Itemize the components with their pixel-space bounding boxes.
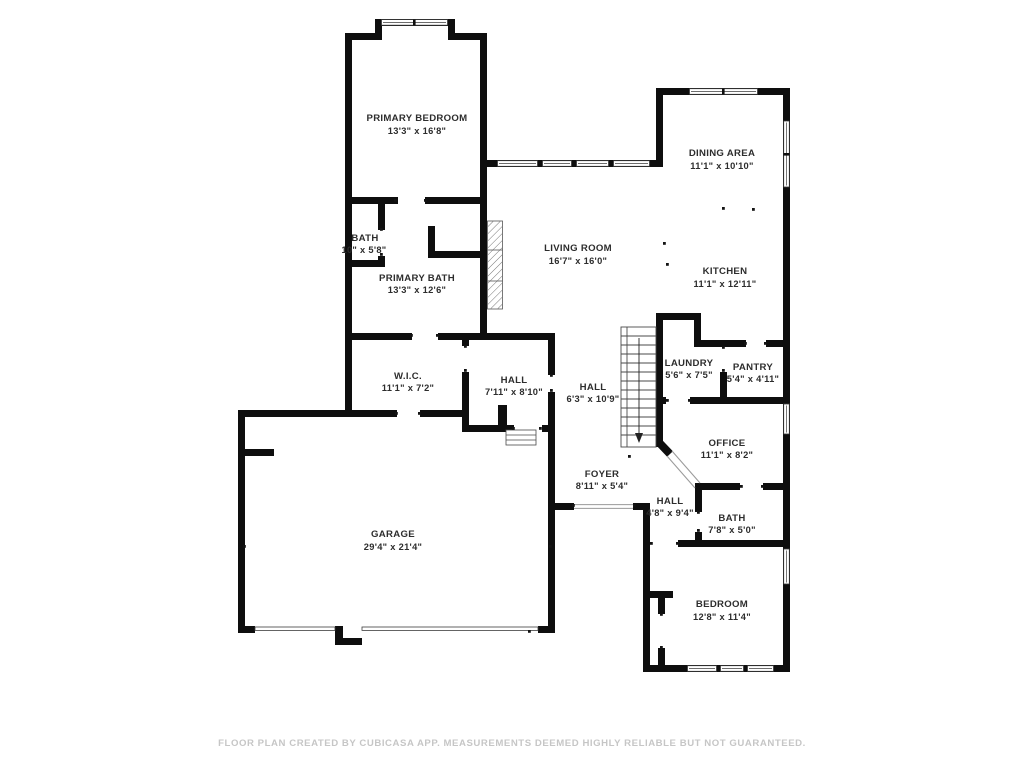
room-label-laundry: LAUNDRY 5'6" x 7'5": [665, 358, 714, 380]
room-dims: 5'6" x 7'5": [665, 370, 713, 380]
fireplace: [488, 221, 503, 309]
room-name: OFFICE: [709, 438, 746, 449]
room-dims: 8'11" x 5'4": [576, 481, 629, 491]
room-name: BEDROOM: [696, 599, 748, 610]
room-name: PANTRY: [733, 362, 773, 373]
room-label-primary-bath: PRIMARY BATH 13'3" x 12'6": [379, 273, 455, 295]
window-bedroom-right: [784, 549, 790, 584]
room-dims: 6'3" x 10'9": [566, 394, 619, 404]
room-name: HALL: [657, 496, 684, 507]
room-label-office: OFFICE 11'1" x 8'2": [701, 438, 754, 460]
walls: [238, 19, 790, 672]
room-label-bedroom: BEDROOM 12'8" x 11'4": [693, 599, 751, 622]
room-label-dining-area: DINING AREA 11'1" x 10'10": [689, 148, 755, 171]
room-dims: 10" x 5'8": [341, 245, 386, 255]
room-name: BATH: [718, 513, 745, 524]
room-label-living-room: LIVING ROOM 16'7" x 16'0": [544, 243, 612, 266]
floor-plan-canvas: PRIMARY BEDROOM 13'3" x 16'8" DINING ARE…: [0, 0, 1024, 768]
garage-doors: [255, 627, 538, 630]
room-label-wic: W.I.C. 11'1" x 7'2": [382, 371, 435, 393]
floor-plan-page: PRIMARY BEDROOM 13'3" x 16'8" DINING ARE…: [0, 0, 1024, 768]
room-label-hall-2: HALL 6'3" x 10'9": [566, 382, 619, 404]
window-bedroom-bottom: [688, 666, 774, 672]
room-name: LIVING ROOM: [544, 243, 612, 254]
room-dims: 29'4" x 21'4": [364, 542, 423, 552]
room-name: HALL: [501, 375, 528, 386]
room-dims: 11'1" x 7'2": [382, 383, 435, 393]
window-office: [784, 404, 790, 434]
room-label-hall-3: HALL 4'8" x 9'4": [646, 496, 694, 518]
room-name: PRIMARY BEDROOM: [367, 113, 468, 124]
diagonal-opening: [667, 451, 700, 488]
room-dims: 7'8" x 5'0": [708, 525, 756, 535]
room-name: DINING AREA: [689, 148, 755, 159]
room-dims: 13'3" x 12'6": [388, 285, 447, 295]
room-name: LAUNDRY: [665, 358, 714, 369]
room-dims: 11'1" x 10'10": [690, 161, 753, 171]
room-dims: 5'4" x 4'11": [727, 374, 780, 384]
front-door-opening: [574, 505, 633, 509]
room-label-garage: GARAGE 29'4" x 21'4": [364, 529, 423, 552]
room-name: W.I.C.: [394, 371, 422, 382]
window-dining-top: [690, 89, 758, 95]
window-bay-primary-bedroom: [382, 20, 448, 26]
room-dims: 4'8" x 9'4": [646, 508, 694, 518]
room-label-foyer: FOYER 8'11" x 5'4": [576, 469, 629, 491]
room-name: HALL: [580, 382, 607, 393]
room-label-primary-bedroom: PRIMARY BEDROOM 13'3" x 16'8": [367, 113, 468, 136]
room-dims: 11'1" x 8'2": [701, 450, 754, 460]
room-label-bath-2: BATH 7'8" x 5'0": [708, 513, 756, 535]
footer-disclaimer: FLOOR PLAN CREATED BY CUBICASA APP. MEAS…: [218, 738, 806, 749]
room-label-pantry: PANTRY 5'4" x 4'11": [727, 362, 780, 384]
room-name: FOYER: [585, 469, 620, 480]
room-dims: 7'11" x 8'10": [485, 387, 543, 397]
room-dims: 16'7" x 16'0": [549, 256, 608, 266]
room-dims: 11'1" x 12'11": [694, 279, 757, 289]
room-name: KITCHEN: [703, 266, 748, 277]
garage-steps: [506, 430, 536, 445]
staircase: [621, 327, 656, 447]
room-label-kitchen: KITCHEN 11'1" x 12'11": [694, 266, 757, 289]
window-dining-right: [784, 121, 790, 187]
room-dims: 13'3" x 16'8": [388, 126, 447, 136]
room-name: GARAGE: [371, 529, 415, 540]
room-name: BATH: [351, 233, 378, 244]
room-dims: 12'8" x 11'4": [693, 612, 751, 622]
room-name: PRIMARY BATH: [379, 273, 455, 284]
room-label-hall-1: HALL 7'11" x 8'10": [485, 375, 543, 397]
